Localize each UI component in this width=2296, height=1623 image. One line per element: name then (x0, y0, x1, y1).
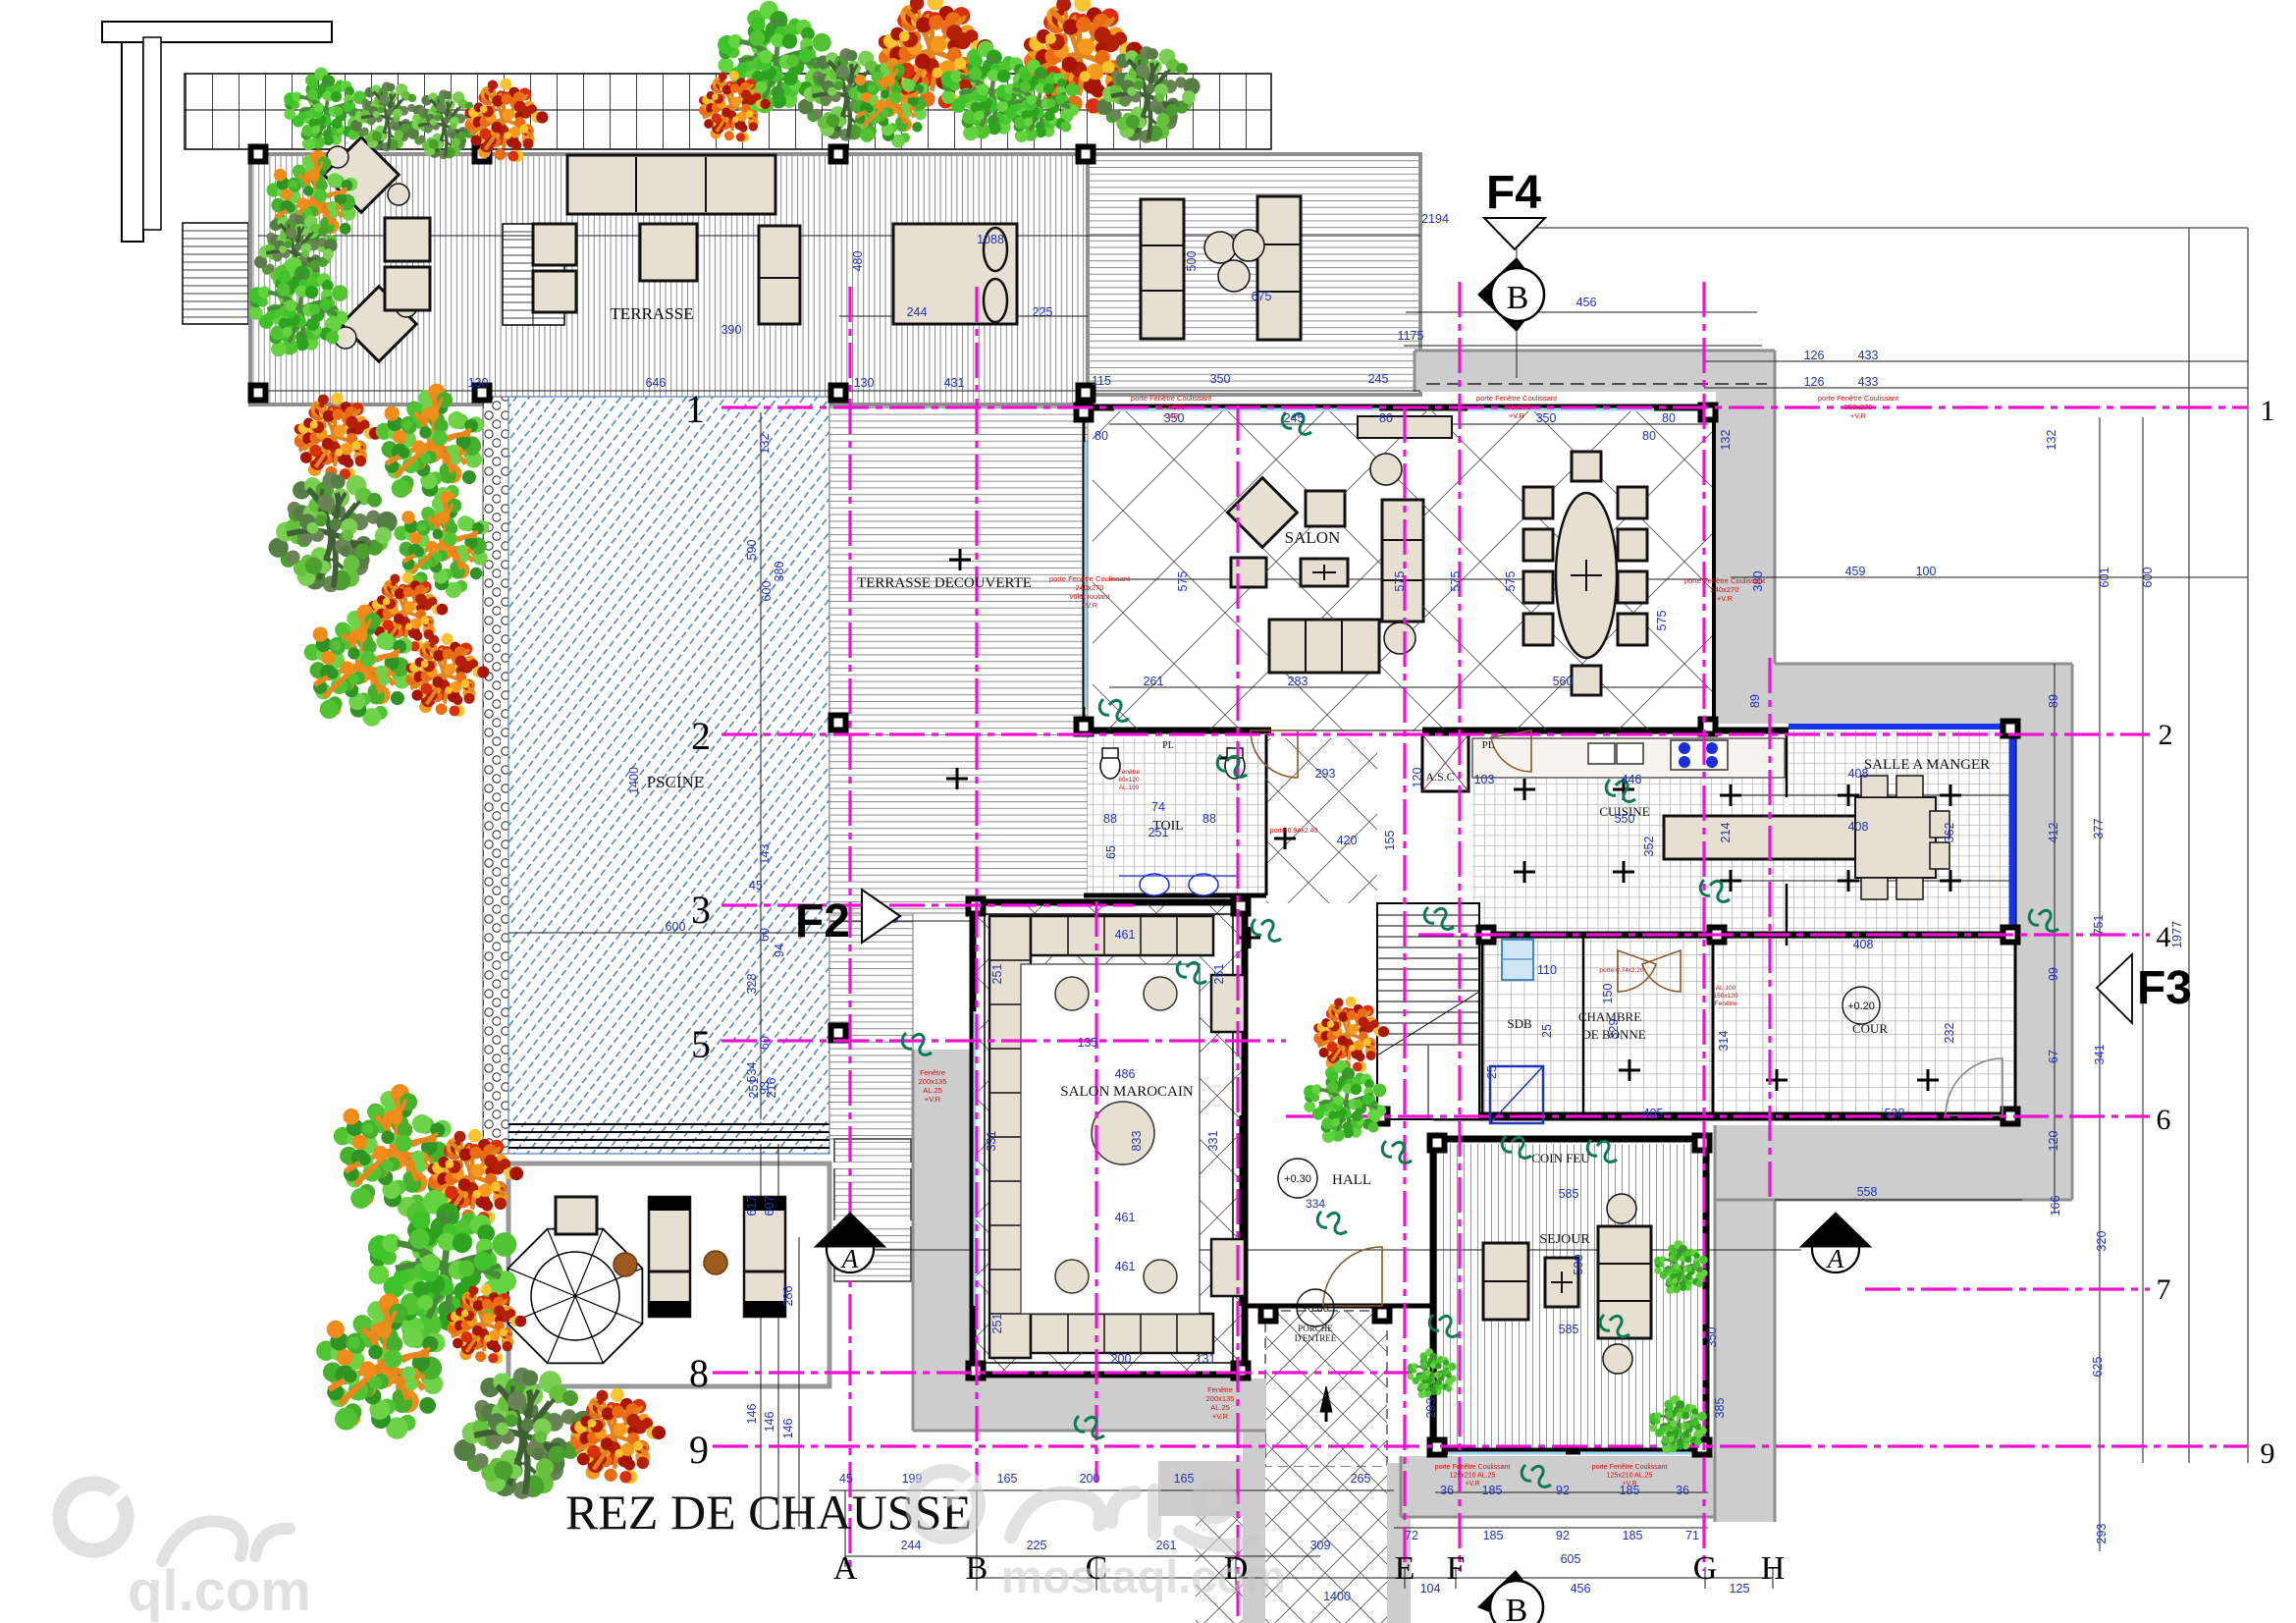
svg-text:575: 575 (1176, 571, 1190, 592)
svg-text:550: 550 (1615, 812, 1635, 826)
svg-text:2: 2 (691, 714, 711, 758)
svg-text:130: 130 (468, 376, 489, 390)
svg-text:216: 216 (765, 1078, 778, 1099)
svg-text:2194: 2194 (1421, 212, 1449, 226)
svg-text:A.S.C: A.S.C (1425, 770, 1454, 784)
svg-text:92: 92 (1556, 1484, 1570, 1497)
svg-text:1: 1 (2261, 395, 2275, 427)
svg-text:412: 412 (2047, 823, 2060, 843)
svg-text:89: 89 (2047, 694, 2060, 708)
svg-text:80: 80 (1095, 429, 1108, 443)
svg-text:380: 380 (773, 562, 786, 582)
svg-text:B: B (1507, 280, 1529, 316)
svg-text:408: 408 (1848, 767, 1869, 781)
svg-text:585: 585 (1559, 1323, 1579, 1336)
svg-text:25: 25 (1485, 1065, 1499, 1079)
svg-text:390: 390 (721, 323, 742, 337)
svg-text:408: 408 (1853, 938, 1874, 951)
svg-text:60: 60 (758, 928, 772, 942)
svg-text:225: 225 (1033, 305, 1053, 319)
svg-text:94: 94 (773, 944, 786, 957)
svg-text:185: 185 (1483, 1529, 1504, 1542)
svg-text:F4: F4 (1486, 167, 1541, 219)
svg-text:240x270: 240x270 (1076, 583, 1104, 592)
svg-text:120: 120 (2047, 1131, 2060, 1152)
svg-text:67: 67 (2047, 1050, 2060, 1063)
svg-text:200x135: 200x135 (1206, 1394, 1235, 1403)
svg-text:126: 126 (1804, 349, 1825, 362)
svg-text:TERRASSE DECOUVERTE: TERRASSE DECOUVERTE (857, 575, 1032, 591)
svg-text:607: 607 (763, 1196, 776, 1217)
svg-text:ql.com: ql.com (128, 1559, 311, 1623)
svg-text:293: 293 (2095, 1524, 2109, 1544)
svg-text:72: 72 (1405, 1529, 1418, 1542)
svg-text:PORCHE: PORCHE (1298, 1324, 1333, 1333)
svg-text:F2: F2 (795, 895, 850, 947)
svg-text:1400: 1400 (627, 767, 641, 794)
svg-text:1977: 1977 (2170, 921, 2184, 948)
svg-text:350x270: 350x270 (1157, 403, 1186, 411)
svg-text:675: 675 (1252, 290, 1272, 303)
svg-text:433: 433 (1858, 375, 1879, 389)
svg-text:286: 286 (781, 1286, 795, 1307)
svg-text:A: A (833, 1550, 858, 1587)
svg-text:SALON: SALON (1285, 528, 1341, 547)
svg-text:103: 103 (1474, 773, 1495, 786)
svg-text:200: 200 (1080, 1472, 1100, 1486)
svg-text:200: 200 (1111, 1352, 1132, 1366)
svg-text:385: 385 (1713, 1398, 1727, 1419)
svg-text:261: 261 (1144, 675, 1164, 688)
svg-text:456: 456 (1571, 1582, 1591, 1596)
svg-text:9: 9 (2261, 1437, 2275, 1470)
svg-text:309: 309 (1310, 1539, 1331, 1552)
svg-text:350: 350 (1536, 411, 1557, 425)
svg-text:SEJOUR: SEJOUR (1539, 1232, 1590, 1247)
svg-text:150x120: 150x120 (1714, 993, 1738, 1000)
svg-text:5: 5 (691, 1022, 711, 1066)
svg-text:590: 590 (1572, 1255, 1585, 1275)
svg-text:4: 4 (2157, 921, 2171, 953)
svg-text:+V.R: +V.R (1509, 411, 1525, 420)
svg-text:132: 132 (1719, 430, 1733, 451)
svg-text:245: 245 (1284, 411, 1305, 425)
svg-text:166: 166 (2049, 1196, 2062, 1217)
svg-text:408: 408 (1848, 820, 1869, 834)
svg-text:A: A (1826, 1244, 1844, 1273)
svg-text:146: 146 (745, 1404, 759, 1425)
svg-text:575: 575 (1504, 571, 1518, 592)
svg-text:89: 89 (1748, 694, 1762, 708)
svg-text:6: 6 (2157, 1104, 2171, 1136)
svg-text:331: 331 (1206, 1131, 1220, 1152)
svg-text:+0.30: +0.30 (1284, 1173, 1311, 1185)
svg-text:125x210 AL.25: 125x210 AL.25 (1607, 1473, 1653, 1480)
svg-text:833: 833 (1130, 1131, 1144, 1152)
svg-text:HALL: HALL (1332, 1172, 1371, 1188)
svg-text:751: 751 (2092, 915, 2106, 936)
svg-text:431: 431 (944, 376, 965, 390)
svg-text:mostaql.com: mostaql.com (1001, 1550, 1286, 1602)
svg-text:575: 575 (1655, 611, 1669, 631)
svg-text:130: 130 (854, 376, 875, 390)
svg-text:SDB: SDB (1507, 1016, 1532, 1031)
svg-text:314: 314 (1717, 1031, 1731, 1052)
svg-text:185: 185 (1623, 1529, 1643, 1542)
svg-text:3: 3 (691, 888, 711, 932)
svg-text:558: 558 (1857, 1185, 1878, 1199)
svg-text:420: 420 (1337, 834, 1358, 847)
svg-text:115: 115 (1092, 374, 1111, 388)
svg-text:AL.100: AL.100 (1716, 985, 1736, 992)
svg-text:SALON MAROCAIN: SALON MAROCAIN (1060, 1084, 1194, 1100)
svg-text:100: 100 (1916, 565, 1937, 578)
svg-text:461: 461 (1115, 928, 1136, 942)
svg-text:350: 350 (1210, 372, 1231, 386)
svg-text:PL: PL (1162, 740, 1174, 751)
svg-text:245: 245 (1368, 372, 1389, 386)
svg-text:585: 585 (1559, 1187, 1579, 1201)
svg-text:486: 486 (1115, 1067, 1136, 1081)
svg-text:110: 110 (1537, 963, 1557, 977)
svg-text:99: 99 (2047, 967, 2060, 981)
svg-text:36: 36 (1440, 1484, 1454, 1497)
svg-text:74: 74 (1151, 800, 1165, 814)
svg-text:88: 88 (1202, 812, 1216, 826)
svg-text:605: 605 (1561, 1552, 1581, 1566)
svg-text:244: 244 (907, 305, 928, 319)
svg-text:251: 251 (1212, 964, 1226, 985)
svg-text:porte 0.94x2.40: porte 0.94x2.40 (1270, 828, 1318, 835)
svg-text:362: 362 (1943, 823, 1956, 843)
svg-text:461: 461 (1115, 1211, 1136, 1224)
svg-text:165: 165 (1174, 1472, 1195, 1486)
svg-text:porte Fenêtre Coulissant: porte Fenêtre Coulissant (1131, 394, 1212, 403)
svg-text:TERRASSE: TERRASSE (610, 304, 693, 323)
svg-text:575: 575 (1393, 571, 1407, 592)
svg-text:456: 456 (1576, 296, 1597, 309)
svg-text:80: 80 (1379, 411, 1393, 425)
svg-text:D'ENTREE: D'ENTREE (1295, 1333, 1337, 1343)
svg-text:25: 25 (1540, 1024, 1554, 1038)
svg-text:131: 131 (1196, 1352, 1216, 1366)
svg-text:SALLE A MANGER: SALLE A MANGER (1864, 757, 1990, 773)
svg-text:251: 251 (990, 964, 1004, 985)
svg-text:1: 1 (685, 387, 705, 431)
svg-text:240x270: 240x270 (1711, 585, 1739, 594)
svg-text:293: 293 (1315, 767, 1336, 781)
svg-text:135: 135 (1078, 1036, 1098, 1050)
svg-text:porte Fenêtre Coulissant: porte Fenêtre Coulissant (1684, 576, 1766, 585)
svg-text:+V.R: +V.R (1717, 594, 1734, 603)
svg-text:45: 45 (749, 879, 763, 893)
svg-text:350x270: 350x270 (1844, 403, 1873, 411)
svg-text:329: 329 (1607, 1019, 1621, 1040)
svg-text:265: 265 (1351, 1472, 1371, 1486)
svg-text:155: 155 (1383, 831, 1397, 851)
svg-text:132: 132 (2045, 430, 2058, 451)
svg-text:601: 601 (2098, 568, 2111, 588)
svg-text:293: 293 (1424, 1398, 1438, 1419)
svg-text:+V.R: +V.R (925, 1095, 941, 1104)
svg-text:+0.20: +0.20 (1847, 1001, 1875, 1012)
svg-text:+V.R: +V.R (1212, 1412, 1229, 1421)
svg-text:H: H (1761, 1550, 1786, 1587)
svg-text:600: 600 (2141, 568, 2155, 588)
svg-text:36: 36 (1676, 1484, 1689, 1497)
svg-text:251: 251 (1148, 826, 1169, 839)
svg-text:65: 65 (1104, 845, 1118, 859)
svg-text:377: 377 (2092, 819, 2106, 839)
svg-text:251: 251 (990, 1314, 1004, 1334)
svg-text:+V.R: +V.R (1082, 601, 1098, 610)
svg-text:232: 232 (1943, 1023, 1956, 1044)
svg-text:7: 7 (2157, 1273, 2171, 1306)
svg-text:125x210 AL.25: 125x210 AL.25 (1450, 1473, 1496, 1480)
svg-text:Fenêtre: Fenêtre (1715, 1001, 1737, 1007)
svg-text:600: 600 (760, 581, 774, 602)
svg-text:F: F (1447, 1550, 1466, 1587)
svg-text:G: G (1693, 1550, 1718, 1587)
svg-text:80: 80 (1662, 411, 1676, 425)
svg-text:617: 617 (745, 1196, 759, 1217)
svg-text:405: 405 (1643, 1107, 1664, 1120)
svg-text:125: 125 (1730, 1582, 1750, 1596)
svg-text:AL.100: AL.100 (1119, 784, 1140, 791)
svg-text:80x120: 80x120 (1118, 777, 1140, 784)
svg-text:341: 341 (2093, 1045, 2107, 1065)
svg-text:165: 165 (997, 1472, 1018, 1486)
svg-text:480: 480 (851, 251, 865, 272)
svg-text:625: 625 (2091, 1357, 2105, 1378)
svg-text:88: 88 (1103, 812, 1117, 826)
svg-text:334: 334 (1306, 1197, 1325, 1211)
svg-text:143: 143 (758, 844, 772, 865)
svg-text:132: 132 (758, 434, 772, 455)
svg-text:2: 2 (2159, 719, 2173, 751)
svg-text:COIN FEU: COIN FEU (1531, 1151, 1590, 1165)
svg-text:porte 0.74x2.20: porte 0.74x2.20 (1599, 967, 1644, 974)
svg-text:porte Fenêtre Coulissant: porte Fenêtre Coulissant (1435, 1464, 1511, 1471)
svg-text:porte Fenêtre Coulissant: porte Fenêtre Coulissant (1476, 394, 1558, 403)
svg-text:volet roulant: volet roulant (1070, 592, 1111, 601)
svg-text:1088: 1088 (977, 233, 1004, 246)
svg-text:+V.R: +V.R (1622, 1481, 1636, 1488)
svg-text:92: 92 (1556, 1529, 1570, 1542)
svg-text:146: 146 (763, 1412, 776, 1433)
svg-text:PL: PL (1482, 739, 1495, 751)
svg-text:251: 251 (747, 1078, 761, 1099)
svg-text:283: 283 (1288, 675, 1308, 688)
svg-text:459: 459 (1845, 565, 1866, 578)
svg-text:126: 126 (1804, 375, 1825, 389)
svg-text:500: 500 (1185, 251, 1199, 272)
svg-text:600: 600 (666, 920, 686, 934)
svg-text:B: B (966, 1550, 988, 1587)
svg-text:104: 104 (1420, 1582, 1441, 1596)
svg-text:446: 446 (1622, 773, 1642, 786)
svg-text:E: E (1395, 1550, 1415, 1587)
svg-text:120: 120 (1411, 768, 1424, 788)
svg-text:328: 328 (745, 974, 759, 995)
svg-text:1175: 1175 (1398, 329, 1424, 343)
svg-text:A: A (840, 1244, 859, 1273)
svg-text:538: 538 (1885, 1107, 1905, 1120)
svg-text:1400: 1400 (1323, 1590, 1351, 1603)
svg-text:+0.00: +0.00 (1302, 1303, 1329, 1315)
svg-text:185: 185 (1482, 1484, 1503, 1497)
svg-text:8: 8 (689, 1351, 709, 1395)
svg-text:560: 560 (1553, 675, 1574, 688)
svg-text:Fenêtre: Fenêtre (1207, 1385, 1233, 1394)
svg-text:B: B (1506, 1593, 1528, 1623)
svg-text:porte Fenêtre Coulissant: porte Fenêtre Coulissant (1049, 574, 1131, 583)
svg-text:F3: F3 (2137, 962, 2192, 1014)
svg-text:60: 60 (758, 1036, 772, 1050)
svg-text:350x270: 350x270 (1503, 403, 1531, 411)
svg-text:331: 331 (985, 1131, 998, 1152)
svg-text:352: 352 (1642, 837, 1656, 857)
svg-text:150: 150 (1601, 984, 1615, 1004)
svg-text:350: 350 (1705, 1327, 1719, 1348)
svg-text:71: 71 (1685, 1529, 1699, 1542)
svg-text:+V.R: +V.R (1850, 411, 1867, 420)
svg-text:590: 590 (745, 540, 759, 561)
svg-text:AL.25: AL.25 (923, 1086, 942, 1095)
svg-text:45: 45 (839, 1472, 853, 1486)
svg-text:AL.25: AL.25 (1210, 1403, 1230, 1412)
svg-text:9: 9 (689, 1428, 709, 1472)
svg-text:+V.R: +V.R (1163, 411, 1180, 420)
svg-text:433: 433 (1858, 349, 1879, 362)
svg-text:146: 146 (781, 1419, 795, 1439)
svg-text:320: 320 (2095, 1231, 2109, 1252)
svg-text:Fenêtre: Fenêtre (920, 1068, 945, 1077)
svg-text:Fenêtre: Fenêtre (1118, 769, 1141, 776)
svg-text:80: 80 (1642, 429, 1656, 443)
svg-text:PSCINE: PSCINE (647, 773, 705, 791)
svg-text:575: 575 (1449, 571, 1463, 592)
svg-text:200x135: 200x135 (919, 1077, 947, 1086)
svg-text:461: 461 (1115, 1260, 1136, 1273)
svg-text:porte Fenêtre Coulissant: porte Fenêtre Coulissant (1592, 1464, 1668, 1471)
svg-text:646: 646 (646, 376, 667, 390)
svg-text:porte Fenêtre Coulissant: porte Fenêtre Coulissant (1818, 394, 1899, 403)
svg-text:214: 214 (1719, 823, 1733, 843)
svg-text:244: 244 (901, 1539, 922, 1552)
svg-text:+V.R: +V.R (1465, 1481, 1479, 1488)
